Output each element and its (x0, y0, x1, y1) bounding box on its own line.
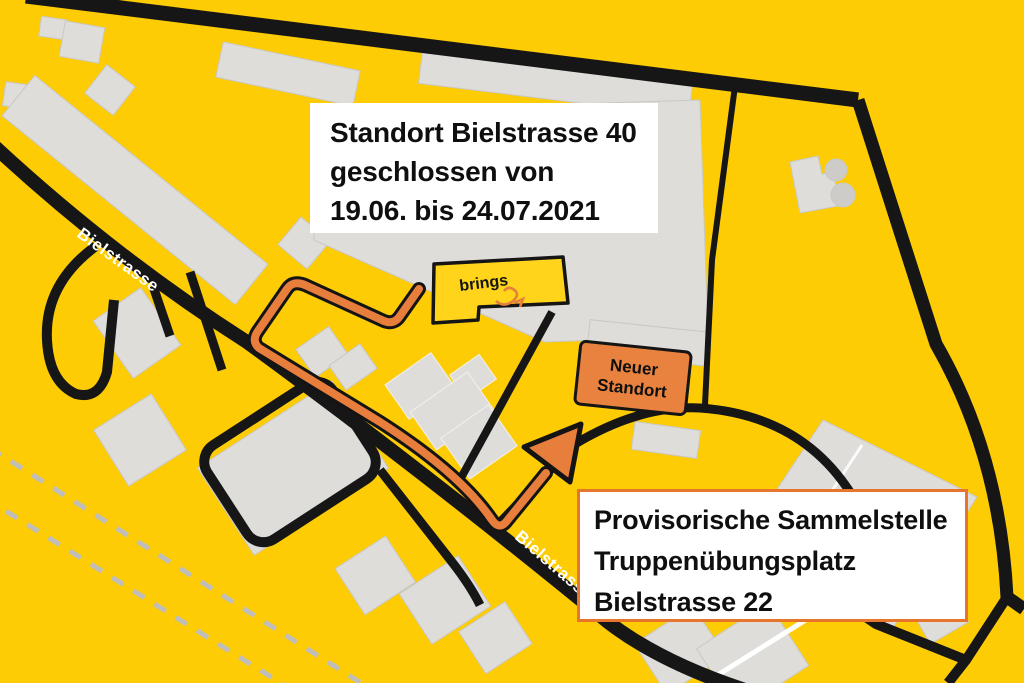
road-right-branch (948, 660, 966, 683)
provisional-callout: Provisorische Sammelstelle Truppenübungs… (577, 489, 968, 622)
closure-line: 19.06. bis 24.07.2021 (330, 191, 650, 230)
provisional-line: Bielstrasse 22 (594, 582, 959, 623)
provisional-line: Provisorische Sammelstelle (594, 500, 959, 541)
provisional-line: Truppenübungsplatz (594, 541, 959, 582)
site-map: Bielstrasse Bielstrasse brings Standort … (0, 0, 1024, 683)
closure-line: geschlossen von (330, 152, 650, 191)
tank-circle (825, 159, 847, 181)
closure-line: Standort Bielstrasse 40 (330, 113, 650, 152)
tank-circle (831, 183, 855, 207)
closure-callout: Standort Bielstrasse 40 geschlossen von … (310, 103, 658, 233)
new-location-callout: Neuer Standort (573, 339, 693, 417)
road-thin-boundary (705, 86, 735, 405)
